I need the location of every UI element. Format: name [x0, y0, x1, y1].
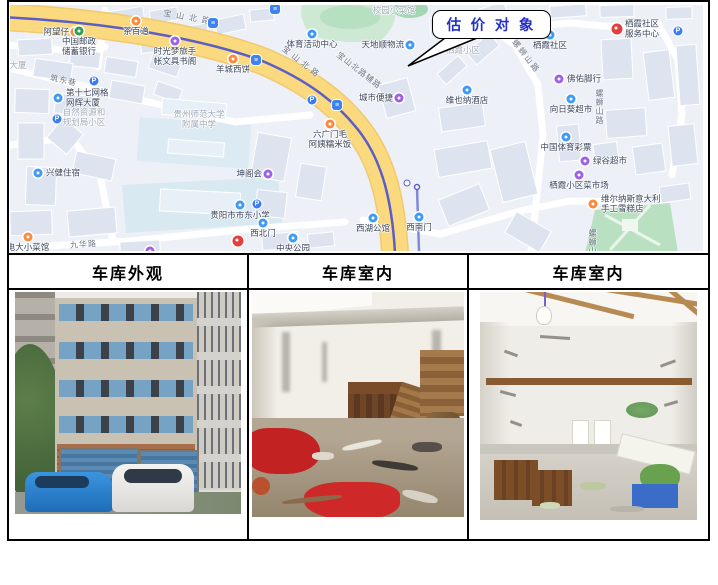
- poi-label: 天地顺物流: [361, 40, 404, 50]
- poi-orange-icon: [132, 17, 141, 26]
- callout-bubble: 估 价 对 象: [432, 10, 551, 39]
- poi-label: 中国体育彩票: [540, 143, 591, 153]
- header-garage-interior-2: 车库室内: [467, 255, 708, 288]
- poi-label: 羊城西饼: [216, 65, 250, 75]
- area-label: 大厦: [10, 61, 27, 71]
- poi-label: 体育活动中心: [286, 40, 337, 50]
- photo-garage-interior-2: [480, 292, 697, 520]
- poi-red-icon: [233, 236, 244, 247]
- photo-garage-interior-1: [252, 292, 464, 517]
- table-header-row: 车库外观 车库室内 车库室内: [9, 253, 708, 290]
- poi-blue-icon: [54, 94, 63, 103]
- poi-blue-icon: [236, 201, 245, 210]
- area-label: 自然资源和规划局小区: [63, 108, 106, 127]
- poi-orange-icon: [589, 200, 598, 209]
- poi-orange-icon: [326, 120, 335, 129]
- parking-icon: P: [90, 77, 99, 86]
- poi-blue-icon: [415, 213, 424, 222]
- poi-label: 栖霞社区服务中心: [625, 20, 659, 39]
- poi-label: 西北门: [250, 229, 276, 239]
- poi-purple-icon: [264, 170, 273, 179]
- transit-icon: ≡: [270, 5, 280, 14]
- document-table: 阿望仔中国邮政储蓄银行茶百道时光梦旅手帐文具书阁羊城西饼体育活动中心第十七网格网…: [7, 0, 710, 541]
- poi-blue-icon: [567, 95, 576, 104]
- poi-purple-icon: [171, 37, 180, 46]
- map-image: 阿望仔中国邮政储蓄银行茶百道时光梦旅手帐文具书阁羊城西饼体育活动中心第十七网格网…: [10, 5, 703, 251]
- poi-blue-icon: [308, 30, 317, 39]
- map-label-layer: 阿望仔中国邮政储蓄银行茶百道时光梦旅手帐文具书阁羊城西饼体育活动中心第十七网格网…: [10, 5, 703, 251]
- header-garage-interior-1: 车库室内: [247, 255, 467, 288]
- poi-label: 城市便捷: [359, 93, 393, 103]
- poi-label: 西南门: [406, 223, 432, 233]
- area-label: 校园小菜馆: [373, 6, 416, 16]
- poi-label: 栖霞小区菜市场: [549, 181, 609, 191]
- poi-label: 维也纳酒店: [446, 96, 489, 106]
- dot-icon: [404, 180, 411, 187]
- poi-blue-icon: [259, 219, 268, 228]
- poi-purple-icon: [146, 247, 155, 252]
- area-label: 栖霞小区: [446, 46, 480, 56]
- photo-cell-interior-2: [467, 290, 708, 539]
- road-label: 筑东巷: [49, 72, 78, 88]
- poi-purple-icon: [581, 157, 590, 166]
- poi-label: 西湖公馆: [356, 224, 390, 234]
- poi-label: 栖霞社区: [533, 41, 567, 51]
- blue-car: [25, 472, 113, 512]
- parking-icon: P: [308, 96, 317, 105]
- transit-icon: ≡: [332, 100, 342, 110]
- poi-blue-icon: [34, 169, 43, 178]
- plant: [626, 402, 658, 418]
- poi-label: 时光梦旅手帐文具书阁: [154, 47, 197, 66]
- photo-cell-exterior: [9, 290, 247, 539]
- poi-label: 茶百道: [123, 27, 149, 37]
- poi-blue-icon: [369, 214, 378, 223]
- road-label: 宝山北路辅路: [334, 50, 383, 92]
- area-label: 贵州师范大学附属中学: [173, 110, 224, 129]
- poi-label: 绿谷超市: [593, 156, 627, 166]
- white-car: [112, 464, 194, 512]
- poi-orange-icon: [24, 233, 33, 242]
- wood-stack: [420, 350, 464, 416]
- transit-icon: ≡: [251, 55, 261, 65]
- poi-label: 佛佑脚行: [567, 74, 601, 84]
- poi-label: 维尔纳斯意大利手工雪糕店: [601, 195, 661, 214]
- poi-label: 六广门毛阿姨糯米饭: [309, 130, 352, 149]
- red-fabric: [252, 428, 320, 474]
- poi-blue-icon: [562, 133, 571, 142]
- callout-text: 估 价 对 象: [447, 14, 537, 35]
- header-garage-exterior: 车库外观: [9, 255, 247, 288]
- transit-icon: ≡: [208, 18, 218, 28]
- poi-label: 中国邮政储蓄银行: [62, 37, 96, 56]
- poi-purple-icon: [575, 171, 584, 180]
- road-label: 九华路: [70, 238, 98, 251]
- poi-label: 第十七网格网辉大厦: [66, 89, 109, 108]
- light-bulb: [536, 306, 552, 325]
- road-label: 螺蛳山路: [594, 89, 605, 125]
- poi-label: 向日葵超市: [550, 105, 593, 115]
- photo-garage-exterior: [15, 292, 241, 514]
- table-photo-row: [9, 290, 708, 539]
- poi-label: 电大小菜馆: [10, 243, 49, 251]
- poi-green-icon: [75, 27, 84, 36]
- road-label: 螺蛳山: [587, 229, 598, 251]
- parking-icon: P: [253, 200, 262, 209]
- poi-purple-icon: [395, 94, 404, 103]
- adjacent-building: [197, 292, 241, 490]
- poi-blue-icon: [406, 41, 415, 50]
- parking-icon: P: [674, 27, 683, 36]
- map-row: 阿望仔中国邮政储蓄银行茶百道时光梦旅手帐文具书阁羊城西饼体育活动中心第十七网格网…: [9, 2, 708, 253]
- wall-beam: [486, 378, 692, 385]
- parking-icon: P: [53, 115, 62, 124]
- photo-cell-interior-1: [247, 290, 467, 539]
- poi-red-icon: [612, 24, 623, 35]
- poi-blue-icon: [463, 86, 472, 95]
- poi-orange-icon: [229, 55, 238, 64]
- poi-purple-icon: [555, 75, 564, 84]
- poi-label: 兴健住宿: [46, 168, 80, 178]
- blue-crate: [632, 484, 678, 508]
- poi-blue-icon: [289, 234, 298, 243]
- wooden-stool: [532, 470, 572, 506]
- poi-label: 坤阁会: [236, 169, 262, 179]
- poi-label: 中央公园: [276, 244, 310, 251]
